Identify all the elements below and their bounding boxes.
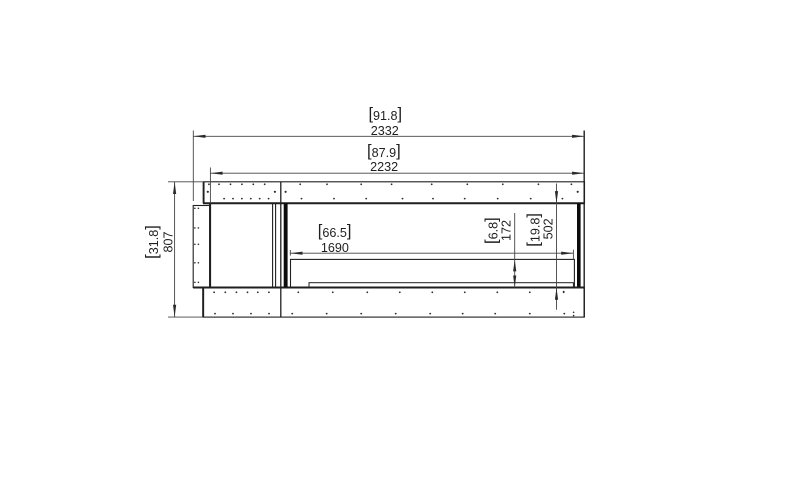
svg-text:502: 502 xyxy=(542,218,556,239)
svg-text:2232: 2232 xyxy=(370,160,398,174)
svg-text:1690: 1690 xyxy=(321,241,349,255)
svg-text:807: 807 xyxy=(161,231,175,252)
svg-text:2332: 2332 xyxy=(371,124,399,138)
svg-text:172: 172 xyxy=(499,220,513,241)
